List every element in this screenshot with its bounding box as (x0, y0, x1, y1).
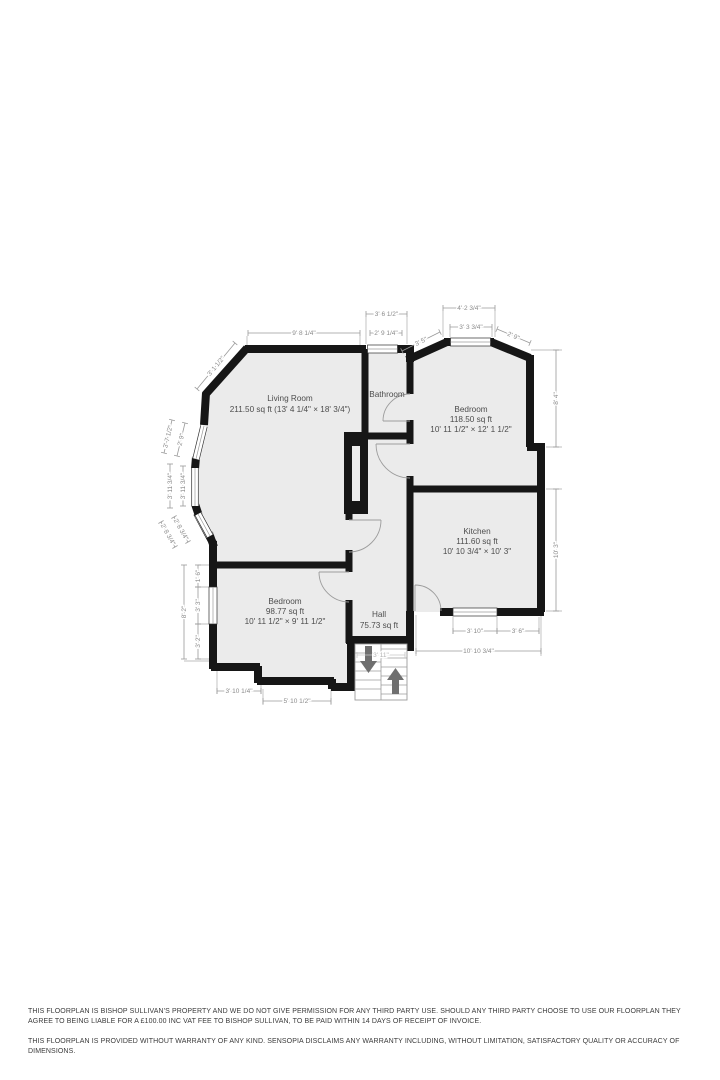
room-label-living-name: Living Room (267, 394, 313, 403)
disclaimer-property-text: THIS FLOORPLAN IS BISHOP SULLIVAN'S PROP… (28, 1007, 694, 1027)
window-bathroom (368, 345, 398, 353)
dimension-label: 3' 3 3/4" (459, 324, 483, 331)
bay-window-2 (192, 468, 199, 506)
disclaimer-warranty-text: THIS FLOORPLAN IS PROVIDED WITHOUT WARRA… (28, 1037, 694, 1057)
dimension-label: 3' 5" (414, 336, 429, 348)
dimension-label: 2' 9" (177, 432, 187, 447)
room-label-bedroom1-area: 118.50 sq ft (450, 415, 493, 424)
room-label-kitchen-area: 111.60 sq ft (456, 537, 498, 546)
disclaimer: THIS FLOORPLAN IS BISHOP SULLIVAN'S PROP… (28, 1007, 694, 1067)
room-label-bedroom2-name: Bedroom (268, 597, 301, 606)
dimension-label: 10' 3" (553, 541, 560, 558)
dimension-label: 2' 9 1/4" (374, 330, 398, 337)
room-label-living-detail: 211.50 sq ft (13' 4 1/4" × 18' 3/4") (230, 405, 351, 414)
window-bedroom2 (209, 587, 217, 624)
dimension-label: 1' 6" (195, 569, 202, 582)
room-label-bedroom2-area: 98.77 sq ft (266, 607, 305, 616)
dimension-label: 3' 11 3/4" (180, 472, 187, 499)
dimension-label: 4' 2 3/4" (457, 305, 481, 312)
dimension-label: 3' 11 3/4" (167, 472, 174, 499)
dimension-label: 3' 3" (195, 599, 202, 612)
room-label-hall-name: Hall (372, 610, 386, 619)
floorplan-page: 9' 8 1/4"3' 6 1/2"2' 9 1/4"3' 5"4' 2 3/4… (0, 0, 720, 1080)
dimension-label: 5' 10 1/2" (283, 698, 311, 705)
dimension-label: 2' 9" (506, 331, 521, 343)
window-bedroom1 (451, 338, 491, 346)
dimension-label: 3' 7 1/2" (162, 424, 174, 449)
room-label-bedroom1-size: 10' 11 1/2" × 12' 1 1/2" (430, 425, 511, 434)
dimension-line (185, 541, 190, 544)
dimension-label: 3' 10 1/4" (225, 688, 253, 695)
room-label-hall-area: 75.73 sq ft (360, 621, 399, 630)
room-label-kitchen-name: Kitchen (463, 527, 491, 536)
room-label-kitchen-size: 10' 10 3/4" × 10' 3" (443, 547, 511, 556)
chimney-recess (352, 446, 360, 501)
dimension-label: 8' 2" (181, 605, 188, 618)
dimension-label: 2' 8 3/4" (159, 523, 177, 547)
room-bathroom: Bathroom (369, 390, 405, 399)
dimension-line (172, 546, 177, 549)
dimension-label: 10' 10 3/4" (463, 648, 494, 655)
window-kitchen (453, 608, 497, 616)
dimension-label: 3' 2" (195, 635, 202, 648)
dimension-label: 3' 6 1/2" (375, 311, 399, 318)
dimension-label: 9' 8 1/4" (292, 330, 316, 337)
dimension-label: 3' 10" (467, 628, 484, 635)
room-label-bathroom-name: Bathroom (369, 390, 405, 399)
room-label-bedroom1-name: Bedroom (454, 405, 487, 414)
floorplan-drawing: 9' 8 1/4"3' 6 1/2"2' 9 1/4"3' 5"4' 2 3/4… (0, 0, 720, 1080)
dimension-label: 3' 11" (373, 652, 389, 659)
dimension-label: 3' 6" (512, 628, 525, 635)
dimension-label: 8' 4" (553, 392, 560, 405)
dimension-line (439, 329, 442, 334)
room-label-bedroom2-size: 10' 11 1/2" × 9' 11 1/2" (245, 617, 326, 626)
